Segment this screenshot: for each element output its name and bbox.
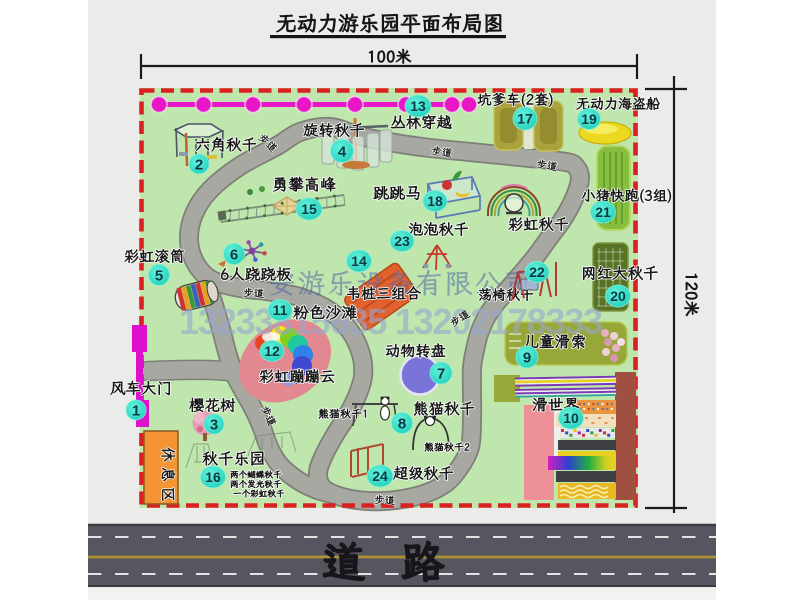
svg-text:6: 6 bbox=[230, 246, 238, 263]
svg-text:5: 5 bbox=[155, 267, 163, 284]
svg-text:1: 1 bbox=[132, 402, 140, 419]
svg-text:16: 16 bbox=[205, 469, 221, 485]
svg-text:20: 20 bbox=[610, 288, 626, 304]
svg-text:8: 8 bbox=[398, 415, 406, 432]
svg-text:11: 11 bbox=[273, 302, 288, 318]
svg-text:12: 12 bbox=[264, 343, 280, 359]
svg-text:10: 10 bbox=[563, 410, 579, 426]
svg-text:2: 2 bbox=[195, 156, 203, 173]
svg-text:13: 13 bbox=[410, 98, 426, 114]
svg-text:15: 15 bbox=[301, 201, 317, 217]
svg-text:3: 3 bbox=[210, 416, 218, 433]
svg-text:4: 4 bbox=[338, 143, 347, 160]
svg-text:9: 9 bbox=[523, 349, 531, 366]
svg-text:21: 21 bbox=[595, 204, 611, 220]
svg-text:24: 24 bbox=[372, 468, 388, 484]
svg-text:18: 18 bbox=[427, 193, 443, 209]
svg-text:22: 22 bbox=[529, 264, 545, 280]
svg-text:19: 19 bbox=[581, 111, 597, 127]
svg-text:7: 7 bbox=[437, 365, 445, 382]
svg-text:13233815635 13202178333: 13233815635 13202178333 bbox=[179, 301, 602, 342]
svg-text:14: 14 bbox=[351, 253, 367, 269]
svg-text:23: 23 bbox=[394, 233, 410, 249]
svg-text:17: 17 bbox=[517, 111, 533, 127]
